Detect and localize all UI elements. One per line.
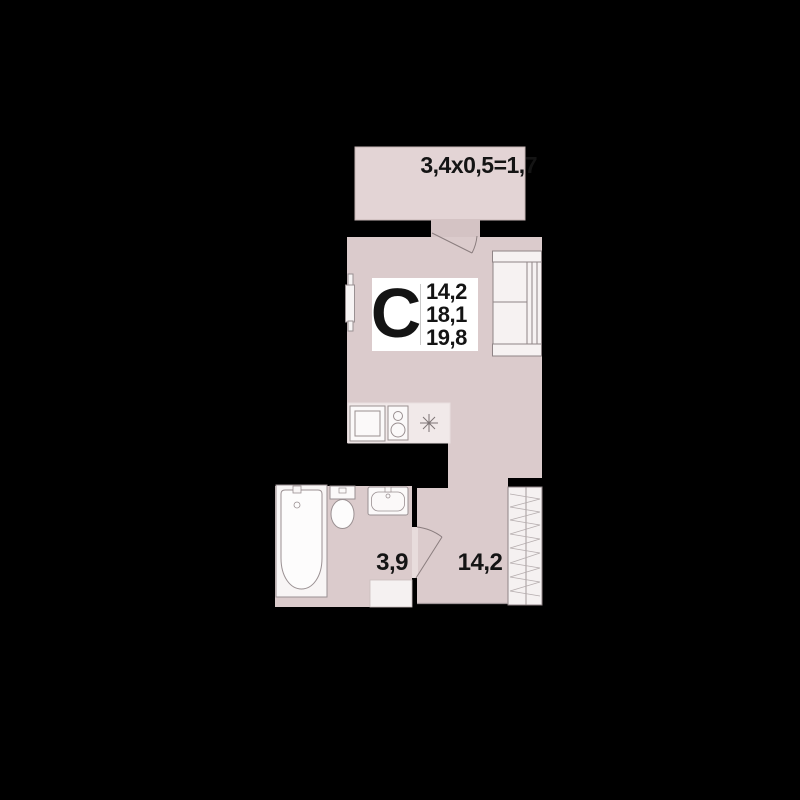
toilet-icon	[330, 486, 355, 529]
unit-label-box: С 14,2 18,1 19,8	[372, 278, 478, 351]
hallway-floor	[417, 488, 508, 604]
washbasin-icon	[368, 487, 408, 515]
sofa-icon	[493, 251, 542, 356]
unit-type-label: С	[372, 278, 420, 351]
area-line-total: 18,1	[426, 303, 478, 326]
unit-area-list: 14,2 18,1 19,8	[421, 278, 478, 351]
door-niche	[370, 580, 412, 607]
bathroom-area-label: 3,9	[356, 549, 408, 577]
bathtub-icon	[276, 485, 327, 597]
passage-floor-2	[448, 476, 508, 490]
stove-icon	[388, 406, 408, 440]
kitchen-sink-icon	[350, 406, 385, 441]
balcony-dimension-label: 3,4x0,5=1,7	[355, 152, 537, 179]
floor-plan-canvas	[0, 0, 800, 800]
bathroom-door-threshold	[411, 527, 418, 578]
floor-plan-page: 3,4x0,5=1,7 С 14,2 18,1 19,8 3,9 14,2	[0, 0, 800, 800]
passage-floor	[448, 440, 542, 478]
hallway-area-label: 14,2	[452, 549, 508, 577]
radiator-icon	[346, 274, 355, 331]
area-line-living: 14,2	[426, 280, 478, 303]
area-line-total-reduced: 19,8	[426, 326, 478, 349]
wardrobe-icon	[508, 487, 542, 605]
